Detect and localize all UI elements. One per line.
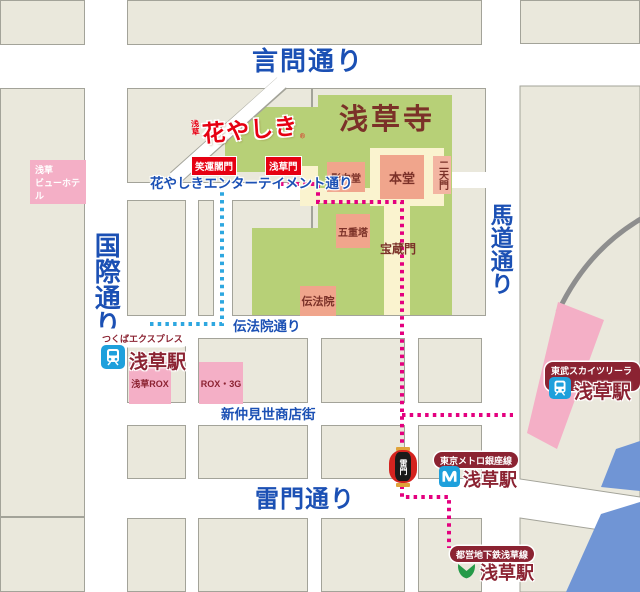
city-block <box>198 425 308 479</box>
shounkaku-gate-label: 笑運閣門 <box>192 157 236 175</box>
sensoji-label: 浅草寺 <box>339 105 435 135</box>
kaminarimon-lantern-icon: 雷門 <box>389 447 417 487</box>
asakusa-gate-label: 浅草門 <box>266 157 301 175</box>
city-block <box>0 0 85 45</box>
asakusa-view-hotel: 浅草ビューホテル <box>30 160 86 204</box>
city-block <box>520 86 640 497</box>
tx-line-badge: つくばエクスプレス <box>96 330 189 346</box>
tx-station-name: 浅草駅 <box>129 347 186 374</box>
city-block <box>321 338 405 403</box>
city-block <box>0 88 85 517</box>
sumida-river <box>566 502 640 592</box>
nitenmon-gate: 二天門 <box>433 156 451 194</box>
city-block <box>520 0 640 44</box>
toei-ginkgo-icon <box>456 560 477 586</box>
city-block <box>0 517 85 592</box>
street-notch <box>452 172 486 188</box>
metro-icon <box>439 466 460 492</box>
metro-station-name: 浅草駅 <box>463 466 517 492</box>
city-block <box>127 0 482 45</box>
railway-line <box>558 216 640 312</box>
city-block <box>127 518 186 592</box>
hanayashiki-logo-registered-mark: ® <box>300 133 306 140</box>
street-label-kototoi: 言問通り <box>252 48 364 75</box>
main-hall: 本堂 <box>380 155 424 199</box>
train-icon <box>101 345 125 374</box>
tobu-station-name: 浅草駅 <box>574 377 631 404</box>
city-block <box>418 338 482 403</box>
city-block <box>520 518 640 592</box>
street-label-denboin-dori: 伝法院通り <box>233 320 301 334</box>
hozomon-label: 宝蔵門 <box>380 243 416 256</box>
city-block <box>127 200 186 316</box>
hanayashiki-logo-prefix: 浅草 <box>189 119 201 136</box>
street-label-kokusai: 国際通り <box>92 232 119 336</box>
temple-path <box>384 200 410 315</box>
city-block <box>321 518 405 592</box>
denboin-hall: 伝法院 <box>300 286 336 316</box>
city-block <box>127 425 186 479</box>
street-label-kaminarimon-dori: 雷門通り <box>255 487 355 512</box>
asakusa-access-map: 影向堂 本堂 五重塔 伝法院 二天門 浅草ビューホテル 浅草ROX ROX・3G… <box>0 0 640 592</box>
street-label-shin-nakamise: 新仲見世商店街 <box>221 408 316 422</box>
rox-3g: ROX・3G <box>199 362 243 404</box>
lantern-band: 雷門 <box>395 452 411 481</box>
sumida-river <box>601 441 640 491</box>
train-icon <box>549 377 571 404</box>
city-block <box>198 518 308 592</box>
street-label-umamichi: 馬道通り <box>488 203 512 295</box>
street-label-entertainment: 花やしきエンターテイメント通り <box>150 177 353 191</box>
toei-station-name: 浅草駅 <box>480 559 534 585</box>
five-story-pagoda: 五重塔 <box>336 214 370 248</box>
lantern-bottom-cap <box>396 483 410 487</box>
city-block <box>198 200 214 316</box>
